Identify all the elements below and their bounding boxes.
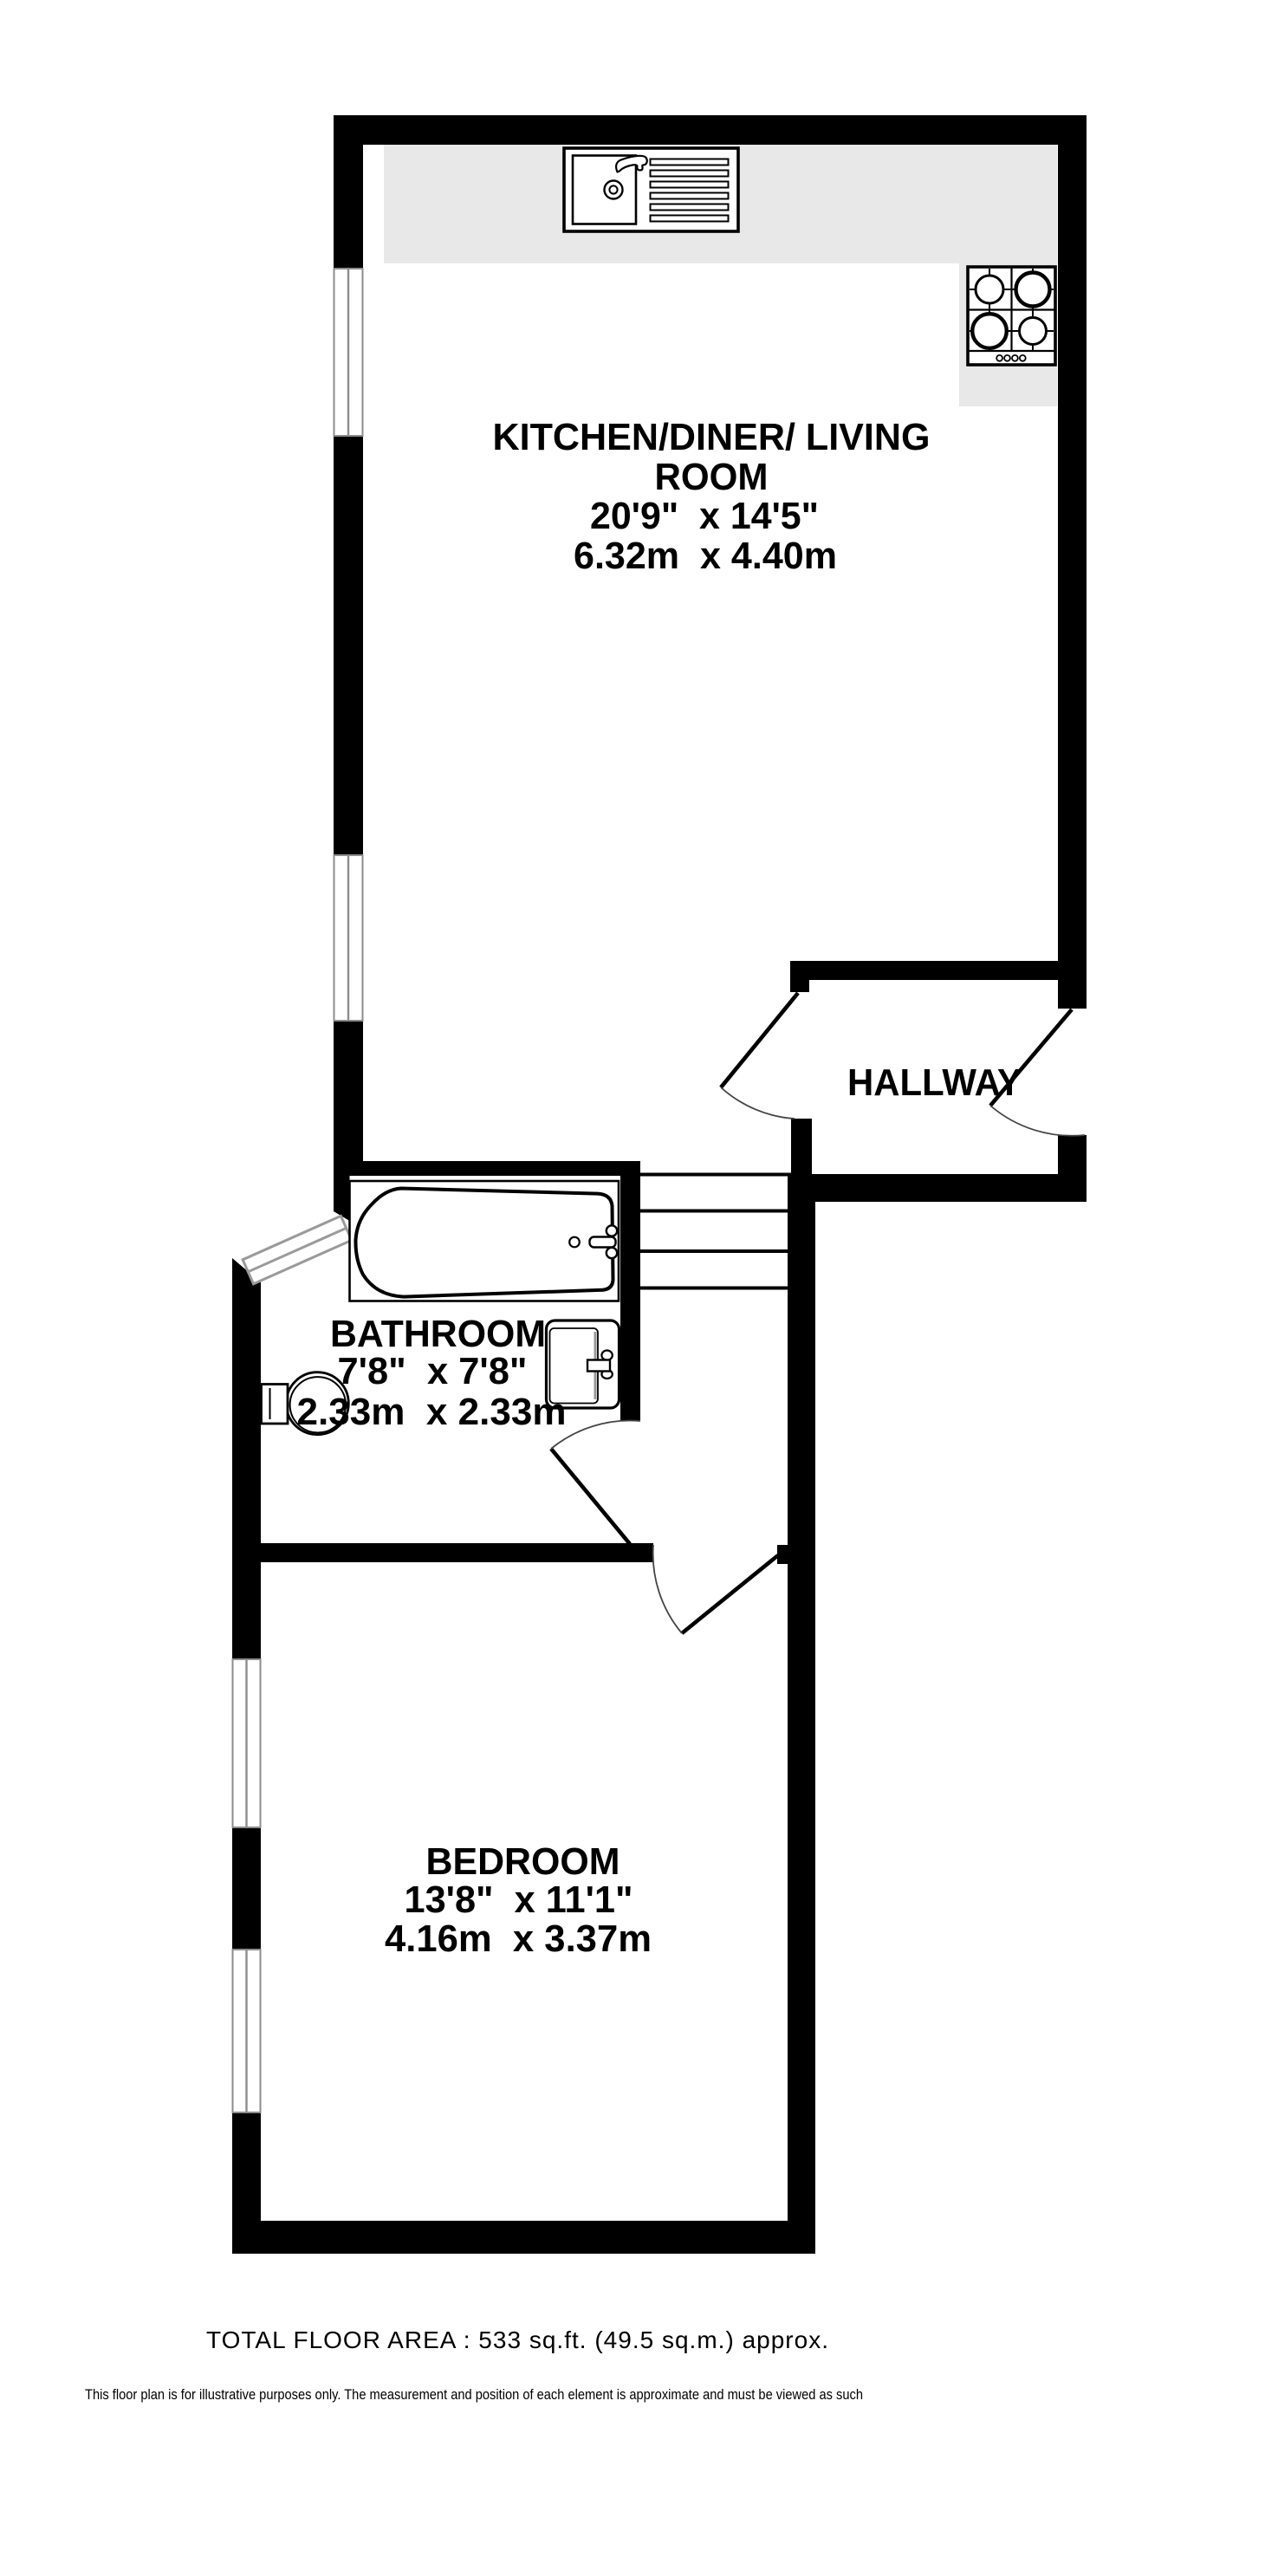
svg-text:2.33m x 2.33m: 2.33m x 2.33m [297, 1391, 567, 1433]
svg-text:BATHROOM: BATHROOM [330, 1313, 546, 1355]
svg-text:This floor plan is for illustr: This floor plan is for illustrative purp… [85, 2387, 863, 2403]
svg-text:4.16m x 3.37m: 4.16m x 3.37m [385, 1917, 652, 1960]
svg-text:KITCHEN/DINER/ LIVING: KITCHEN/DINER/ LIVING [493, 416, 931, 458]
svg-text:HALLWAY: HALLWAY [847, 1061, 1022, 1104]
svg-text:TOTAL FLOOR AREA : 533 sq.ft.: TOTAL FLOOR AREA : 533 sq.ft. (49.5 sq.m… [206, 2326, 828, 2353]
svg-text:6.32m x 4.40m: 6.32m x 4.40m [574, 535, 837, 577]
svg-text:ROOM: ROOM [655, 456, 769, 498]
svg-text:BEDROOM: BEDROOM [426, 1840, 620, 1883]
svg-text:7'8" x 7'8": 7'8" x 7'8" [338, 1350, 528, 1392]
svg-text:13'8" x 11'1": 13'8" x 11'1" [405, 1878, 633, 1921]
svg-text:20'9" x 14'5": 20'9" x 14'5" [590, 495, 819, 537]
